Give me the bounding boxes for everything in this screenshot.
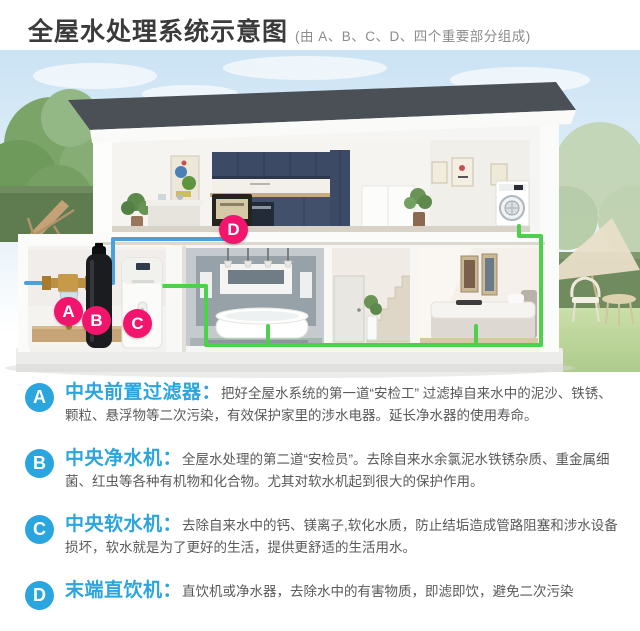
upper-floor-boards [112,226,530,232]
legend-badge-d: D [25,581,54,610]
bathtub [216,308,308,338]
legend: A 中央前置过滤器：把好全屋水系统的第一道“安检工” 过滤掉自来水中的泥沙、铁锈… [25,382,623,631]
marker-d-label: D [227,220,239,240]
legend-title-a: 中央前置过滤器： [65,382,221,403]
marker-a-label: A [62,302,74,322]
legend-badge-a: A [25,383,54,412]
legend-desc-d: 直饮机或净水器，去除水中的有害物质，即滤即饮，避免二次污染 [182,584,574,599]
wall-edge-shadow [182,246,186,352]
left-hedge-top [0,186,105,193]
wall-painting [171,156,199,204]
page: 全屋水处理系统示意图 (由 A、B、C、D、四个重要部分组成) [0,0,640,620]
page-title: 全屋水处理系统示意图 [28,12,288,48]
marker-a: A [54,297,83,326]
page-subtitle: (由 A、B、C、D、四个重要部分组成) [295,25,531,48]
marker-b-label: B [90,311,102,331]
legend-text-c: 中央软水机：去除自来水中的钙、镁离子,软化水质，防止结垢造成管路阻塞和涉水设备损… [65,514,623,559]
house-cutaway-illustration: A B C D [0,50,640,384]
washing-machine [496,181,529,226]
legend-item-b: B 中央净水机：全屋水处理的第二道“安检员”。去除自来水余氯泥水铁锈杂质、重金属… [25,448,623,493]
legend-badge-c: C [25,515,54,544]
marker-d: D [219,215,248,244]
header: 全屋水处理系统示意图 (由 A、B、C、D、四个重要部分组成) [28,12,531,48]
marker-b: B [82,306,111,335]
bedroom [418,248,542,346]
marker-c-label: C [131,314,143,334]
legend-title-d: 末端直饮机： [65,580,182,601]
legend-text-a: 中央前置过滤器：把好全屋水系统的第一道“安检工” 过滤掉自来水中的泥沙、铁锈、颗… [65,382,623,427]
legend-title-c: 中央软水机： [65,514,182,535]
wall-hallway-bedroom [410,248,418,346]
interior-door [334,276,364,342]
base-slab-edge [16,364,563,372]
legend-item-c: C 中央软水机：去除自来水中的钙、镁离子,软化水质，防止结垢造成管路阻塞和涉水设… [25,514,623,559]
legend-text-b: 中央净水机：全屋水处理的第二道“安检员”。去除自来水余氯泥水铁锈杂质、重金属细菌… [65,448,623,493]
wall-bathroom-hallway [324,248,332,346]
legend-badge-b: B [25,449,54,478]
marker-c: C [123,309,152,338]
legend-item-d: D 末端直饮机：直饮机或净水器，去除水中的有害物质，即滤即饮，避免二次污染 [25,580,623,610]
floor-slab-shadow [95,242,545,245]
legend-item-a: A 中央前置过滤器：把好全屋水系统的第一道“安检工” 过滤掉自来水中的泥沙、铁锈… [25,382,623,427]
legend-title-b: 中央净水机： [65,448,182,469]
legend-text-d: 末端直饮机：直饮机或净水器，去除水中的有害物质，即滤即饮，避免二次污染 [65,580,623,610]
